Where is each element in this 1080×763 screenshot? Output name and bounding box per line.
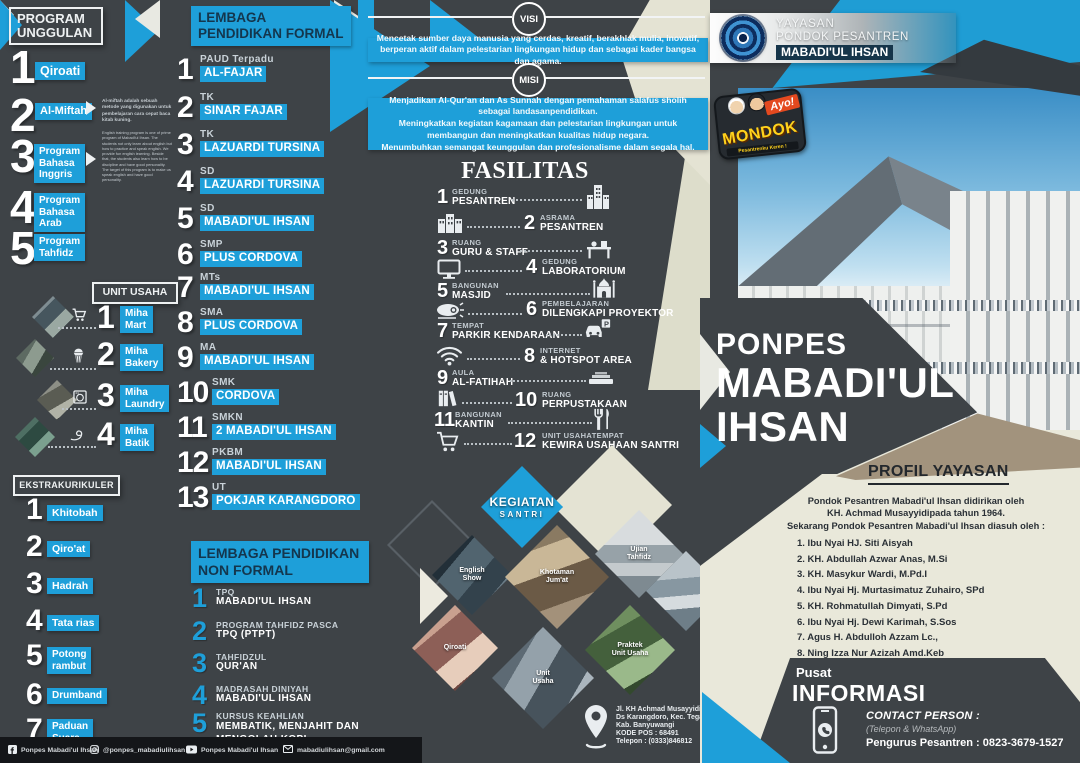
fasilitas-line1: BANGUNAN bbox=[455, 410, 502, 419]
fasilitas-line1: PEMBELAJARAN bbox=[542, 299, 674, 308]
misi-item: Menjadikan Al-Qur'an dan As Sunnah denga… bbox=[378, 95, 698, 117]
fasilitas-line2: KANTIN bbox=[455, 419, 502, 431]
profil-name: 4. Ibu Nyai Hj. Murtasimatuz Zuhairo, SP… bbox=[797, 583, 984, 599]
formal-type: UT bbox=[212, 483, 226, 493]
nonformal-name: MABADI'UL IHSAN bbox=[216, 694, 311, 704]
visi-text-box: Mencetak sumber daya manusia yang cerdas… bbox=[368, 38, 708, 62]
fasilitas-number: 4 bbox=[526, 258, 537, 276]
dotted-connector bbox=[506, 293, 590, 295]
fasilitas-item: TEMPATPARKIR KENDARAAN bbox=[452, 321, 560, 342]
profil-names: 1. Ibu Nyai HJ. Siti Aisyah 2. KH. Abdul… bbox=[797, 536, 984, 662]
profil-name: 5. KH. Rohmatullah Dimyati, S.Pd bbox=[797, 599, 984, 615]
fasilitas-number: 9 bbox=[437, 369, 448, 387]
ekstra-label: Khitobah bbox=[47, 505, 103, 521]
fasilitas-item: RUANGGURU & STAFF bbox=[452, 238, 528, 259]
item-number: 7 bbox=[177, 274, 193, 302]
fasilitas-number: 7 bbox=[437, 322, 448, 340]
fasilitas-item: GEDUNGPESANTREN bbox=[452, 187, 515, 208]
dotted-connector bbox=[467, 358, 520, 360]
item-number: 5 bbox=[26, 642, 42, 670]
formal-type: SMKN bbox=[212, 413, 243, 423]
misi-line bbox=[544, 77, 705, 79]
facebook-icon bbox=[8, 745, 17, 756]
ponpes-line3: IHSAN bbox=[716, 406, 954, 448]
footer-email: mabadiulihsan@gmail.com bbox=[283, 745, 385, 755]
ponpes-line1: PONPES bbox=[716, 330, 954, 360]
washer-icon bbox=[73, 390, 87, 409]
dotted-connector bbox=[510, 380, 586, 382]
fasilitas-item: PEMBELAJARANDILENGKAPI PROYEKTOR bbox=[542, 299, 674, 320]
profil-intro-line: Pondok Pesantren Mabadi'ul Ihsan didirik… bbox=[768, 495, 1064, 507]
nonformal-name: QUR'AN bbox=[216, 662, 257, 672]
formal-name: MABADI'UL IHSAN bbox=[200, 215, 314, 231]
visi-line bbox=[368, 16, 512, 18]
kegiatan-photo: Praktek Unit Usaha bbox=[585, 605, 675, 695]
item-number: 3 bbox=[97, 381, 114, 410]
fasilitas-number: 10 bbox=[515, 391, 537, 409]
fasilitas-line2: MASJID bbox=[452, 290, 499, 302]
fasilitas-line2: PESANTREN bbox=[452, 196, 515, 208]
item-number: 11 bbox=[177, 414, 207, 442]
unit-usaha-label: Miha Bakery bbox=[120, 344, 163, 371]
item-number: 3 bbox=[26, 570, 42, 598]
canting-icon bbox=[70, 428, 85, 446]
yayasan-title: YAYASAN PONDOK PESANTREN MABADI'UL IHSAN bbox=[776, 18, 909, 61]
footer-youtube: Ponpes Mabadi'ul Ihsan bbox=[186, 745, 278, 756]
dotted-connector bbox=[468, 313, 522, 315]
item-number: 12 bbox=[177, 449, 208, 477]
nonformal-header: LEMBAGA PENDIDIKAN NON FORMAL bbox=[191, 541, 369, 583]
item-number: 2 bbox=[26, 533, 42, 561]
profil-title: PROFIL YAYASAN bbox=[868, 463, 1009, 485]
item-number: 4 bbox=[26, 607, 42, 635]
footer-youtube-label: Ponpes Mabadi'ul Ihsan bbox=[201, 747, 278, 754]
formal-type: PAUD Terpadu bbox=[200, 55, 274, 65]
fasilitas-number: 8 bbox=[524, 347, 535, 365]
stage-icon bbox=[588, 371, 614, 390]
dotted-connector bbox=[508, 422, 592, 424]
fasilitas-number: 1 bbox=[437, 188, 448, 206]
item-number: 2 bbox=[192, 619, 207, 644]
dotted-connector bbox=[465, 270, 522, 272]
program-item-label: Program Bahasa Inggris bbox=[34, 144, 85, 183]
dorm-icon bbox=[437, 213, 463, 238]
footer-instagram-label: @ponpes_mabadiulihsan bbox=[103, 747, 185, 754]
cart-icon bbox=[436, 431, 460, 458]
pointer-arrow-icon bbox=[86, 101, 96, 115]
nonformal-name: MABADI'UL IHSAN bbox=[216, 597, 311, 607]
profil-name: 6. Ibu Nyai Hj. Dewi Karimah, S.Sos bbox=[797, 615, 984, 631]
unit-usaha-label: Miha Mart bbox=[120, 306, 153, 333]
ponpes-line2: MABADI'UL bbox=[716, 362, 954, 404]
email-icon bbox=[283, 745, 293, 755]
dotted-connector bbox=[512, 199, 582, 201]
unit-usaha-photo bbox=[37, 380, 77, 420]
fasilitas-line2: & HOTSPOT AREA bbox=[540, 355, 632, 367]
fasilitas-item: AULAAL-FATIHAH bbox=[452, 368, 513, 389]
pointer-arrow-icon bbox=[86, 152, 96, 166]
fasilitas-item: BANGUNANMASJID bbox=[452, 281, 499, 302]
fasilitas-item: BANGUNANKANTIN bbox=[455, 410, 502, 431]
footer-facebook-label: Ponpes Mabadi'ul Ihsan bbox=[21, 747, 98, 754]
item-number: 6 bbox=[26, 681, 42, 709]
contact-sub: (Telepon & WhatsApp) bbox=[866, 724, 956, 734]
formal-name: PLUS CORDOVA bbox=[200, 251, 302, 267]
kegiatan-photo: Unit Usaha bbox=[492, 627, 594, 729]
program-item-label: Program Bahasa Arab bbox=[34, 193, 85, 232]
contact-label: CONTACT PERSON : bbox=[866, 710, 980, 722]
profil-name: 2. KH. Abdullah Azwar Anas, M.Si bbox=[797, 552, 984, 568]
item-number: 1 bbox=[26, 496, 42, 524]
formal-type: SD bbox=[200, 204, 215, 214]
location-pin-icon bbox=[583, 704, 609, 757]
footer-instagram: @ponpes_mabadiulihsan bbox=[90, 745, 185, 756]
formal-type: PKBM bbox=[212, 448, 243, 458]
program-unggulan-header: PROGRAM UNGGULAN bbox=[9, 7, 103, 45]
cupcake-icon bbox=[71, 348, 86, 368]
formal-name: CORDOVA bbox=[212, 389, 279, 405]
profil-name: 7. Agus H. Abdulloh Azzam Lc., bbox=[797, 630, 984, 646]
misi-line bbox=[368, 77, 512, 79]
item-number: 9 bbox=[177, 344, 193, 372]
formal-name: MABADI'UL IHSAN bbox=[200, 284, 314, 300]
formal-type: SMP bbox=[200, 240, 223, 250]
english-note: English training program is one of prime… bbox=[102, 130, 172, 183]
profil-intro: Pondok Pesantren Mabadi'ul Ihsan didirik… bbox=[768, 495, 1064, 532]
profil-name: 1. Ibu Nyai HJ. Siti Aisyah bbox=[797, 536, 984, 552]
item-number: 1 bbox=[10, 46, 35, 88]
misi-text-box: Menjadikan Al-Qur'an dan As Sunnah denga… bbox=[368, 98, 708, 150]
yayasan-line1: YAYASAN bbox=[776, 18, 909, 31]
fasilitas-line1: RUANG bbox=[452, 238, 528, 247]
fasilitas-item: ASRAMAPESANTREN bbox=[540, 213, 603, 234]
item-number: 4 bbox=[192, 683, 207, 708]
formal-name: SINAR FAJAR bbox=[200, 104, 287, 120]
item-number: 4 bbox=[177, 168, 193, 196]
dotted-connector bbox=[58, 327, 96, 329]
fasilitas-line1: TEMPAT bbox=[452, 321, 560, 330]
almiftah-note: Al-miftah adalah sebuah metode yang digu… bbox=[102, 99, 172, 125]
fasilitas-line1: INTERNET bbox=[540, 346, 632, 355]
profil-name: 3. KH. Masykur Wardi, M.Pd.I bbox=[797, 567, 984, 583]
dotted-connector bbox=[520, 250, 582, 252]
formal-type: TK bbox=[200, 130, 214, 140]
fasilitas-line2: PARKIR KENDARAAN bbox=[452, 330, 560, 342]
fasilitas-line1: GEDUNG bbox=[452, 187, 515, 196]
item-number: 3 bbox=[192, 651, 207, 676]
item-number: 10 bbox=[177, 379, 208, 407]
misi-badge: MISI bbox=[512, 63, 546, 97]
instagram-icon bbox=[90, 745, 99, 756]
brochure-canvas: PROGRAM UNGGULAN 1 Qiroati 2 Al-Miftah A… bbox=[0, 0, 1080, 763]
fasilitas-number: 6 bbox=[526, 300, 537, 318]
fasilitas-line1: AULA bbox=[452, 368, 513, 377]
item-number: 2 bbox=[177, 94, 193, 122]
phone-whatsapp-icon bbox=[810, 706, 840, 759]
formal-name: POKJAR KARANGDORO bbox=[212, 494, 360, 510]
fasilitas-number: 2 bbox=[524, 214, 535, 232]
program-item-label: Qiroati bbox=[35, 62, 85, 80]
ekstra-label: Potong rambut bbox=[47, 647, 91, 674]
kegiatan-title: KEGIATAN bbox=[490, 495, 555, 509]
fasilitas-number: 5 bbox=[437, 282, 448, 300]
dotted-connector bbox=[48, 446, 96, 448]
item-number: 1 bbox=[192, 586, 207, 611]
nonformal-type: KURSUS KEAHLIAN bbox=[216, 712, 304, 721]
unit-usaha-label: Miha Laundry bbox=[120, 385, 169, 412]
youtube-icon bbox=[186, 745, 197, 756]
formal-name: MABADI'UL IHSAN bbox=[200, 354, 314, 370]
dotted-connector bbox=[546, 334, 582, 336]
fasilitas-line1: ASRAMA bbox=[540, 213, 603, 222]
cart-icon bbox=[72, 308, 87, 327]
formal-name: PLUS CORDOVA bbox=[200, 319, 302, 335]
contact-value: Pengurus Pesantren : 0823-3679-1527 bbox=[866, 737, 1064, 749]
program-item-label: Program Tahfidz bbox=[34, 234, 85, 261]
formal-type: MTs bbox=[200, 273, 220, 283]
program-item-label: Al-Miftah bbox=[35, 103, 92, 120]
decor-wedge bbox=[620, 0, 710, 185]
fasilitas-line2: GURU & STAFF bbox=[452, 247, 528, 259]
item-number: 2 bbox=[97, 340, 114, 369]
misi-item: Menumbuhkan semangat keunggulan dan prof… bbox=[378, 142, 698, 153]
ekstra-label: Hadrah bbox=[47, 578, 93, 594]
item-number: 4 bbox=[97, 420, 114, 449]
item-number: 13 bbox=[177, 484, 208, 512]
dotted-connector bbox=[462, 402, 512, 404]
fasilitas-line2: PESANTREN bbox=[540, 222, 603, 234]
item-number: 5 bbox=[192, 711, 207, 736]
profil-intro-line: Sekarang Pondok Pesantren Mabadi'ul Ihsa… bbox=[768, 520, 1064, 532]
fasilitas-item: RUANGPERPUSTAKAAN bbox=[542, 390, 627, 411]
fasilitas-title: FASILITAS bbox=[450, 158, 600, 185]
formal-name: LAZUARDI TURSINA bbox=[200, 178, 324, 194]
informasi-line1: Pusat bbox=[796, 665, 831, 680]
fasilitas-line1: GEDUNG bbox=[542, 257, 626, 266]
formal-header: LEMBAGA PENDIDIKAN FORMAL bbox=[191, 6, 351, 46]
item-number: 3 bbox=[10, 135, 35, 177]
item-number: 5 bbox=[10, 227, 35, 269]
dotted-connector bbox=[467, 226, 520, 228]
dotted-connector bbox=[50, 368, 96, 370]
profil-intro-line: KH. Achmad Musayyidipada tahun 1964. bbox=[768, 507, 1064, 519]
unit-usaha-photo bbox=[15, 417, 55, 457]
unit-usaha-photo bbox=[16, 339, 54, 377]
misi-item: Meningkatkan kegiatan kagamaan dan peles… bbox=[378, 118, 698, 140]
ekstra-label: Tata rias bbox=[47, 615, 99, 631]
formal-name: AL-FAJAR bbox=[200, 66, 266, 82]
formal-name: MABADI'UL IHSAN bbox=[212, 459, 326, 475]
fasilitas-number: 12 bbox=[514, 432, 536, 450]
item-number: 6 bbox=[177, 241, 193, 269]
yayasan-logo bbox=[721, 16, 765, 60]
yayasan-line2: PONDOK PESANTREN bbox=[776, 31, 909, 44]
fasilitas-item: GEDUNGLABORATORIUM bbox=[542, 257, 626, 278]
formal-type: SD bbox=[200, 167, 215, 177]
formal-name: LAZUARDI TURSINA bbox=[200, 141, 324, 157]
svg-text:P: P bbox=[604, 319, 609, 328]
fasilitas-line2: PERPUSTAKAAN bbox=[542, 399, 627, 411]
footer-email-label: mabadiulihsan@gmail.com bbox=[297, 747, 385, 754]
building-icon bbox=[586, 183, 610, 214]
formal-header-underline bbox=[191, 44, 349, 46]
nonformal-name: TPQ (PTPT) bbox=[216, 630, 276, 640]
formal-type: SMA bbox=[200, 308, 223, 318]
ponpes-title: PONPES MABADI'UL IHSAN bbox=[716, 330, 954, 448]
fasilitas-line1: UNIT USAHATEMPAT bbox=[542, 431, 679, 440]
formal-type: SMK bbox=[212, 378, 235, 388]
item-number: 5 bbox=[177, 205, 193, 233]
informasi-line2: INFORMASI bbox=[792, 680, 926, 707]
formal-type: TK bbox=[200, 93, 214, 103]
fasilitas-item: INTERNET& HOTSPOT AREA bbox=[540, 346, 632, 367]
footer-facebook: Ponpes Mabadi'ul Ihsan bbox=[8, 745, 98, 756]
fasilitas-number: 3 bbox=[437, 239, 448, 257]
item-number: 3 bbox=[177, 131, 193, 159]
visi-line bbox=[544, 16, 705, 18]
ekstra-label: Qiro'at bbox=[47, 541, 90, 557]
visi-badge: VISI bbox=[512, 2, 546, 36]
fasilitas-line2: AL-FATIHAH bbox=[452, 377, 513, 389]
unit-usaha-label: Miha Batik bbox=[120, 424, 154, 451]
fasilitas-line1: BANGUNAN bbox=[452, 281, 499, 290]
item-number: 1 bbox=[97, 303, 114, 332]
fasilitas-line1: RUANG bbox=[542, 390, 627, 399]
item-number: 8 bbox=[177, 309, 193, 337]
formal-type: MA bbox=[200, 343, 216, 353]
yayasan-line3: MABADI'UL IHSAN bbox=[776, 45, 893, 60]
car-parking-icon: P bbox=[584, 318, 612, 346]
formal-name: 2 MABADI'UL IHSAN bbox=[212, 424, 336, 440]
kegiatan-subtitle: SANTRI bbox=[500, 510, 545, 520]
ayo-mondok-badge: Ayo! MONDOK Pesantrenku Keren ! bbox=[713, 88, 807, 161]
ekstra-label: Drumband bbox=[47, 688, 107, 704]
dotted-connector bbox=[464, 443, 512, 445]
item-number: 1 bbox=[177, 56, 193, 84]
fasilitas-number: 11 bbox=[434, 411, 455, 429]
unit-usaha-photo bbox=[32, 296, 74, 338]
